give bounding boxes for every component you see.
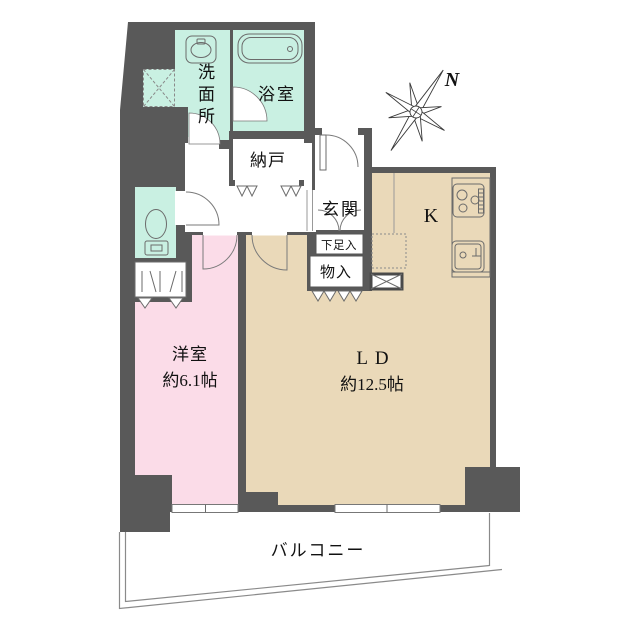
washroom-wall-stub [219,140,233,149]
svg-text:所: 所 [198,107,216,126]
pipe-shaft-icon [371,274,402,289]
living-dining-size: 約12.5帖 [340,375,404,394]
living-door-gap [252,232,287,236]
western-room-label: 洋室 [172,345,208,364]
storage-room-door-gap [235,180,299,186]
front-door-gap [322,125,358,136]
svg-text:洗: 洗 [198,63,216,82]
storage-room-left-wall [229,131,233,186]
western-room-window [172,505,238,513]
floor-plan: N 洗 面 所 浴室 納戸 玄関 下足入 物入 K LD 約12.5帖 洋室 約… [0,0,640,640]
kitchen-label: K [424,205,439,227]
western-room-door-gap [203,232,237,236]
washroom-label: 洗 面 所 [198,63,216,126]
balcony-outline [120,513,503,609]
entrance-hall-passage [304,190,316,232]
front-door-leaf [320,135,326,170]
toilet-floor [135,187,176,258]
western-room-size: 約6.1帖 [162,371,217,390]
balcony-label: バルコニー [271,541,366,560]
storage-closet-label: 物入 [320,264,352,281]
floor-plan-svg: N 洗 面 所 浴室 納戸 玄関 下足入 物入 K LD 約12.5帖 洋室 約… [0,0,640,640]
north-label: N [444,69,461,91]
shoe-box-label: 下足入 [321,239,357,252]
toilet-door-gap [175,191,186,225]
bathroom-label: 浴室 [258,85,296,104]
living-dining-label: LD [356,348,395,369]
svg-text:面: 面 [198,85,216,104]
living-window [335,505,440,513]
storage-room-label: 納戸 [250,151,286,170]
entrance-label: 玄関 [322,200,360,219]
